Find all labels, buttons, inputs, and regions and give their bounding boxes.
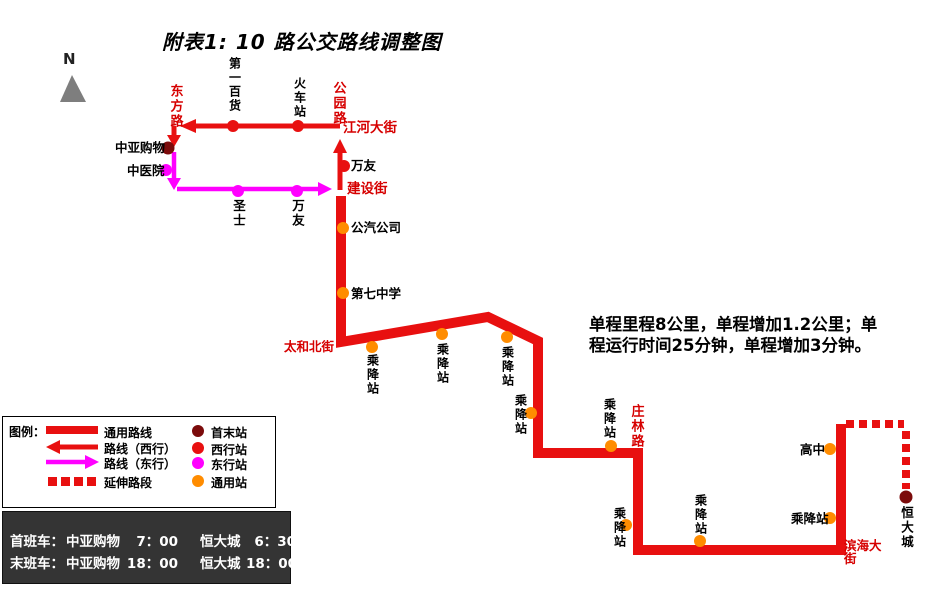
station-dot-gaozhong: [824, 443, 836, 455]
station-dot-gongqigongsi: [337, 222, 349, 234]
station-dot-wanyou-jianshe: [291, 185, 303, 197]
station-label-wanyou-jianshe: 万友: [290, 199, 304, 228]
station-label-zhongya: 中亚购物: [115, 141, 165, 155]
station-dot-diqizhongxue: [337, 287, 349, 299]
route-change-note-line2: 程运行时间25分钟，单程增加3分钟。: [589, 335, 935, 356]
station-label-shengshi: 圣士: [231, 199, 245, 228]
eastbound-right-arrow-icon: [318, 182, 332, 196]
legend-dot-eastbound: [192, 457, 204, 469]
station-label-chengjiang-4: 乘降站: [513, 394, 526, 436]
station-label-chengjiang-3: 乘降站: [500, 346, 513, 388]
westbound-up-arrow-icon: [333, 139, 347, 153]
street-label-jianshejie: 建设街: [347, 182, 388, 197]
street-label-dongfanglu: 东方路: [167, 84, 182, 129]
station-label-hengdacheng: 恒大城: [899, 506, 913, 550]
legend-swatch-extension-dash: [61, 477, 70, 486]
schedule-gap: [178, 552, 200, 572]
schedule-time: 18：00: [126, 552, 178, 572]
station-dot-terminal-hengdacheng: [900, 491, 913, 504]
station-label-zhongyiyuan: 中医院: [127, 164, 165, 178]
station-dot-chengjiang-3: [501, 331, 513, 343]
schedule-stop: 中亚购物: [66, 552, 126, 572]
schedule-stop: 恒大城: [200, 552, 246, 572]
legend-label-common-station: 通用站: [211, 474, 247, 491]
station-dot-chengjiang-5: [605, 440, 617, 452]
station-dot-huochezhan: [292, 120, 304, 132]
station-dot-diyibaihuo: [227, 120, 239, 132]
legend-label-extension-route: 延伸路段: [104, 474, 152, 491]
legend-label-common-route: 通用路线: [104, 424, 152, 441]
schedule-row-first: 首班车： 中亚购物 7：00 恒大城 6：30: [10, 530, 296, 550]
schedule-time: 7：00: [126, 530, 178, 550]
street-label-jianghedajie: 江河大街: [343, 121, 397, 136]
schedule-gap: [178, 530, 200, 550]
legend-dot-common: [192, 475, 204, 487]
legend-dot-westbound: [192, 442, 204, 454]
station-label-huochezhan: 火车站: [292, 77, 305, 119]
schedule-service-label: 首班车：: [10, 530, 66, 550]
legend-swatch-common-route: [46, 426, 98, 434]
station-dot-chengjiang-2: [436, 328, 448, 340]
schedule-stop: 恒大城: [200, 530, 246, 550]
legend-label-terminal-station: 首末站: [211, 424, 247, 441]
schedule-service-label: 末班车：: [10, 552, 66, 572]
legend-swatch-extension-dash: [87, 477, 96, 486]
route-change-note: 单程里程8公里，单程增加1.2公里；单 程运行时间25分钟，单程增加3分钟。: [589, 314, 935, 356]
route-map-canvas: 附表1: 10 路公交路线调整图 N 东方路 公园路 江河大街 建设街 太和北街…: [0, 0, 937, 590]
north-label: N: [63, 50, 76, 68]
legend-swatch-extension-dash: [48, 477, 57, 486]
schedule-time: 6：30: [246, 530, 296, 550]
station-label-chengjiang-7: 乘降站: [693, 494, 706, 536]
street-label-zhuanglinlu: 庄林路: [628, 404, 643, 449]
station-label-gongqigongsi: 公汽公司: [351, 221, 401, 235]
street-label-binhaidajie: 滨海大街: [844, 539, 892, 565]
legend-swatch-extension-dash: [74, 477, 83, 486]
legend-box: 图例： 通用路线 路线（西行） 路线（东行） 延伸路段 首末站 西行站 东行站 …: [2, 416, 276, 508]
north-arrow-icon: [60, 75, 86, 102]
legend-eastbound-arrow-icon: [85, 455, 99, 469]
legend-dot-terminal: [192, 425, 204, 437]
station-dot-chengjiang-1: [366, 341, 378, 353]
station-label-chengjiang-2: 乘降站: [435, 343, 448, 385]
station-dot-shengshi: [232, 185, 244, 197]
schedule-box: 首班车： 中亚购物 7：00 恒大城 6：30 末班车： 中亚购物 18：00 …: [2, 511, 291, 584]
station-label-diyibaihuo: 第一百货: [227, 57, 240, 113]
station-label-wanyou-gongyuan: 万友: [351, 159, 376, 173]
street-label-taihebeijie: 太和北街: [284, 340, 334, 354]
legend-label-eastbound-route: 路线（东行）: [104, 455, 176, 472]
schedule-time: 18：00: [246, 552, 296, 572]
station-dot-chengjiang-7: [694, 535, 706, 547]
station-label-chengjiang-1: 乘降站: [365, 354, 378, 396]
route-change-note-line1: 单程里程8公里，单程增加1.2公里；单: [589, 314, 935, 335]
schedule-stop: 中亚购物: [66, 530, 126, 550]
station-label-chengjiang-5: 乘降站: [602, 398, 615, 440]
common-route-line: [341, 196, 841, 550]
station-label-gaozhong: 高中: [800, 443, 825, 457]
page-title: 附表1: 10 路公交路线调整图: [162, 26, 442, 55]
legend-title: 图例：: [9, 423, 45, 440]
station-label-chengjiang-6: 乘降站: [612, 507, 625, 549]
legend-label-eastbound-station: 东行站: [211, 456, 247, 473]
station-dot-wanyou-gongyuan: [338, 160, 350, 172]
legend-westbound-arrow-icon: [46, 440, 60, 454]
schedule-row-last: 末班车： 中亚购物 18：00 恒大城 18：00: [10, 552, 296, 572]
station-label-diqizhongxue: 第七中学: [351, 287, 401, 301]
station-label-chengjiang-8: 乘降站: [791, 512, 829, 526]
